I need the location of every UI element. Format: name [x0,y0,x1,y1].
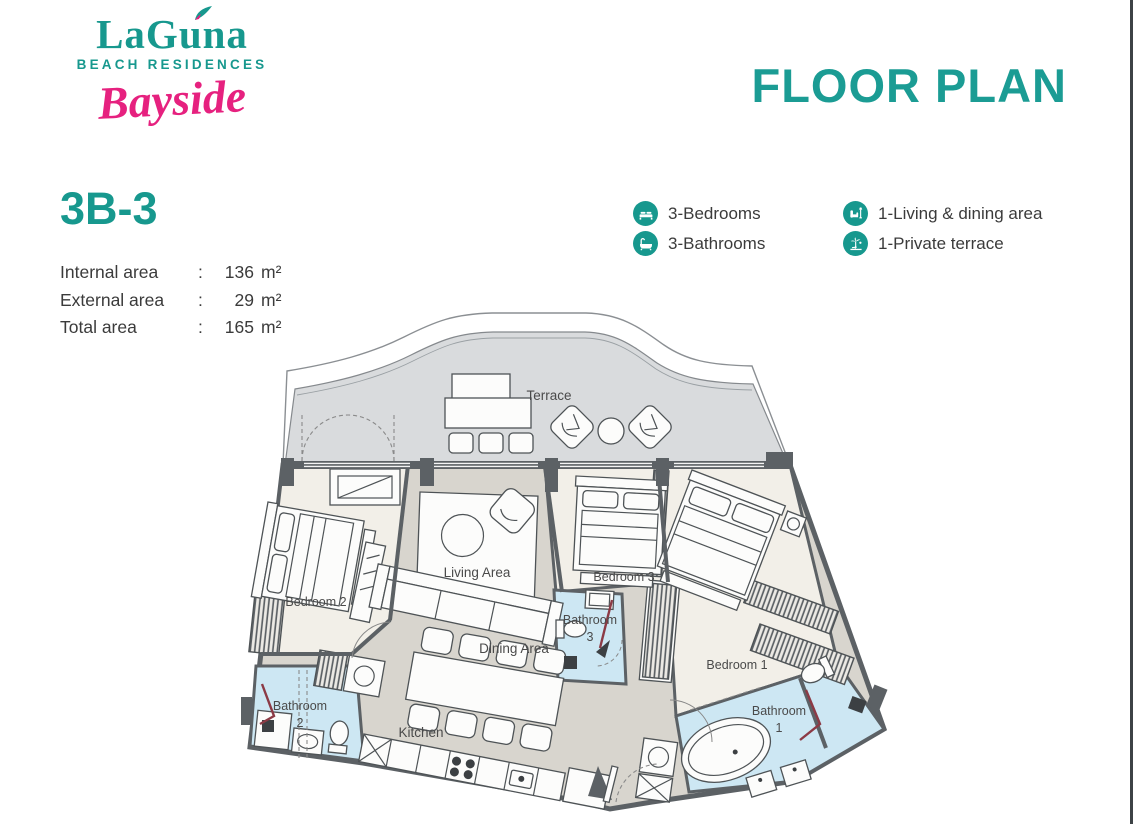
label-bedroom-2: Bedroom 2 [285,595,346,609]
wall-pillar [420,458,434,486]
label-bathroom-3-num: 3 [587,630,594,644]
label-dining: Dining Area [479,641,549,656]
label-bathroom-2: Bathroom [273,699,327,713]
floor-plan-page: LaGuna BEACH RESIDENCES Bayside FLOOR PL… [0,0,1133,824]
label-bedroom-1: Bedroom 1 [706,658,767,672]
wall-tab [241,697,252,725]
floor-plan: Terrace Living Area Dining Area Kitchen … [0,0,1133,824]
label-kitchen: Kitchen [398,725,443,740]
north-wall [283,461,790,469]
label-terrace: Terrace [526,388,571,403]
wall-pillar [545,458,558,492]
wall-pillar [656,458,669,486]
label-bathroom-2-num: 2 [297,716,304,730]
label-bathroom-1-num: 1 [776,721,783,735]
wall-pillar [281,458,294,486]
label-bathroom-3: Bathroom [563,613,617,627]
closet-bedroom-2 [330,469,400,505]
label-living: Living Area [444,565,511,580]
label-bedroom-3: Bedroom 3 [593,570,654,584]
label-bathroom-1: Bathroom [752,704,806,718]
